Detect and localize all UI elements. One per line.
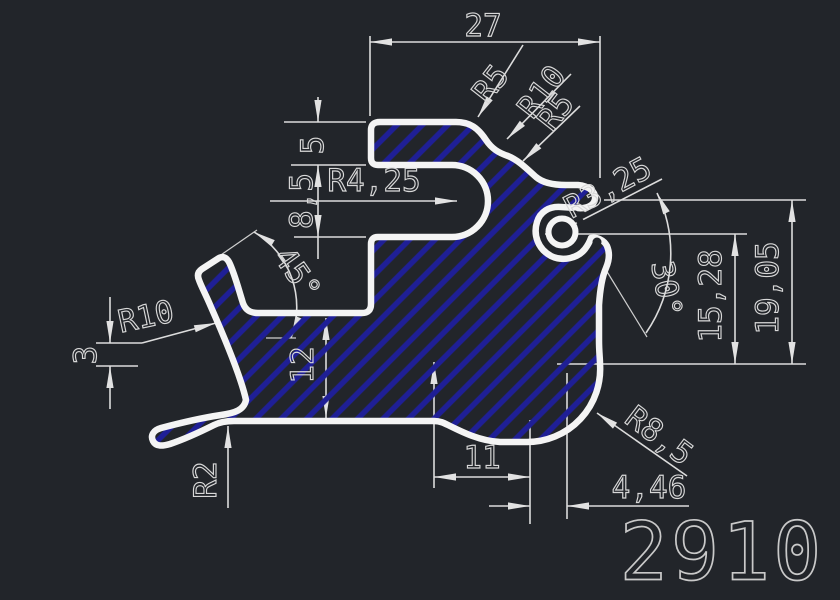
dim-width-top: 27 — [464, 8, 501, 44]
cad-viewport[interactable]: 27 R5 R10 R5 5 8,5 R4,25 R3,25 30° 15,28… — [0, 0, 840, 600]
dim-lip-radius: R2 — [188, 461, 224, 498]
dim-flange-thickness: 5 — [295, 136, 331, 155]
hook-hole — [549, 219, 576, 246]
dim-body-height: 12 — [285, 346, 321, 383]
dim-lip-offset: 3 — [68, 346, 104, 365]
dim-height-inner: 15,28 — [693, 249, 729, 342]
cad-canvas[interactable]: 27 R5 R10 R5 5 8,5 R4,25 R3,25 30° 15,28… — [0, 0, 840, 600]
dim-notch-height: 8,5 — [284, 173, 320, 229]
dim-height-outer: 19,05 — [750, 241, 786, 334]
part-number-label: 2910 — [620, 506, 825, 599]
dim-notch-radius: R4,25 — [327, 163, 420, 199]
nib-hole — [593, 238, 602, 247]
dim-bottom-width: 11 — [463, 440, 500, 476]
dim-corner-offset: 4,46 — [612, 470, 687, 506]
